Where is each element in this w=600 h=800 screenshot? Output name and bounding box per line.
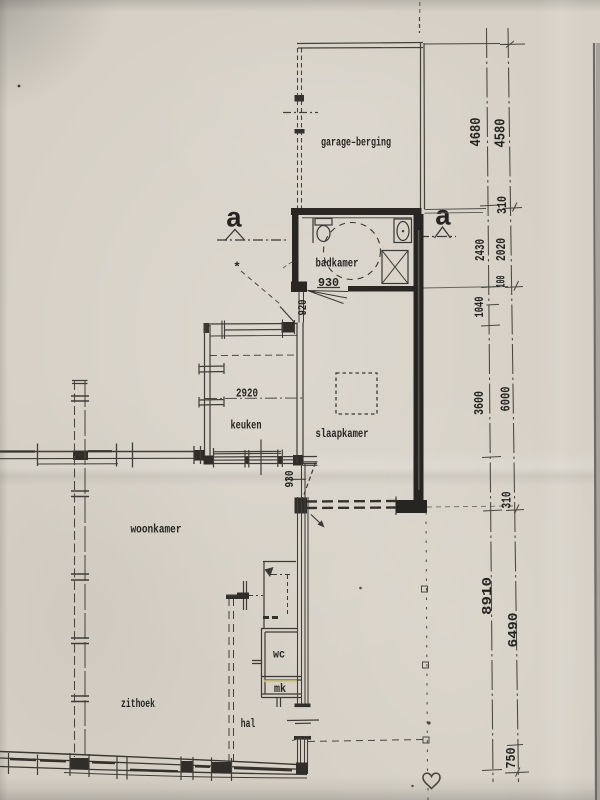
svg-text:badkamer: badkamer <box>316 258 359 271</box>
svg-text:310: 310 <box>496 196 511 214</box>
svg-text:8910: 8910 <box>480 577 496 615</box>
svg-text:310: 310 <box>501 492 516 509</box>
svg-text:6000: 6000 <box>499 387 515 412</box>
svg-text:3600: 3600 <box>472 391 488 415</box>
svg-text:750: 750 <box>505 748 520 769</box>
svg-text:keuken: keuken <box>231 420 262 433</box>
svg-text:930: 930 <box>284 470 297 487</box>
svg-text:930: 930 <box>318 277 339 290</box>
svg-text:920: 920 <box>297 299 310 315</box>
svg-text:wc: wc <box>273 649 285 662</box>
svg-text:4680: 4680 <box>469 118 485 147</box>
svg-text:hal: hal <box>241 718 256 731</box>
svg-text:6490: 6490 <box>506 613 522 648</box>
svg-text:2020: 2020 <box>495 238 510 261</box>
svg-text:garage–berging: garage–berging <box>321 137 391 150</box>
svg-text:slaapkamer: slaapkamer <box>316 428 369 441</box>
svg-text:*: * <box>233 260 241 275</box>
svg-text:1040: 1040 <box>472 296 487 317</box>
svg-text:mk: mk <box>274 683 286 696</box>
svg-text:woonkamer: woonkamer <box>131 524 182 537</box>
svg-text:2920: 2920 <box>236 388 258 401</box>
svg-text:4580: 4580 <box>494 119 510 148</box>
svg-text:a: a <box>226 205 243 236</box>
svg-text:a: a <box>435 203 452 234</box>
svg-text:2430: 2430 <box>474 239 489 261</box>
svg-text:100: 100 <box>495 276 509 288</box>
svg-text:zithoek: zithoek <box>121 698 155 711</box>
